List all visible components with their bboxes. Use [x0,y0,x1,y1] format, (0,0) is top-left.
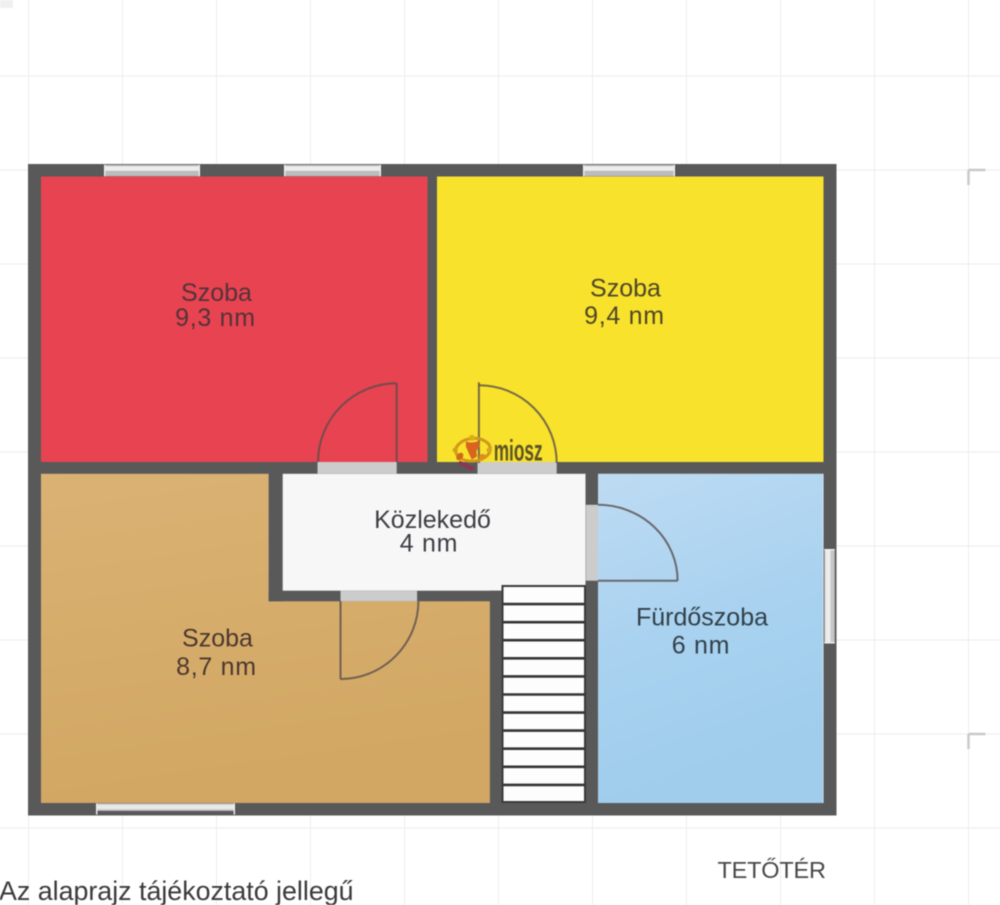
svg-text:Szoba: Szoba [590,275,661,303]
svg-text:Szoba: Szoba [182,625,253,653]
svg-text:4 nm: 4 nm [400,530,458,558]
svg-text:miosz: miosz [494,435,543,468]
svg-text:9,4 nm: 9,4 nm [584,302,665,330]
svg-text:Fürdőszoba: Fürdőszoba [636,604,768,632]
svg-text:TETŐTÉR: TETŐTÉR [718,857,826,883]
svg-text:8,7 nm: 8,7 nm [176,653,257,681]
svg-text:Az alaprajz tájékoztató jelleg: Az alaprajz tájékoztató jellegű [0,876,354,905]
svg-text:Szoba: Szoba [181,279,252,307]
svg-text:6 nm: 6 nm [672,632,730,660]
svg-text:9,3 nm: 9,3 nm [175,304,256,332]
